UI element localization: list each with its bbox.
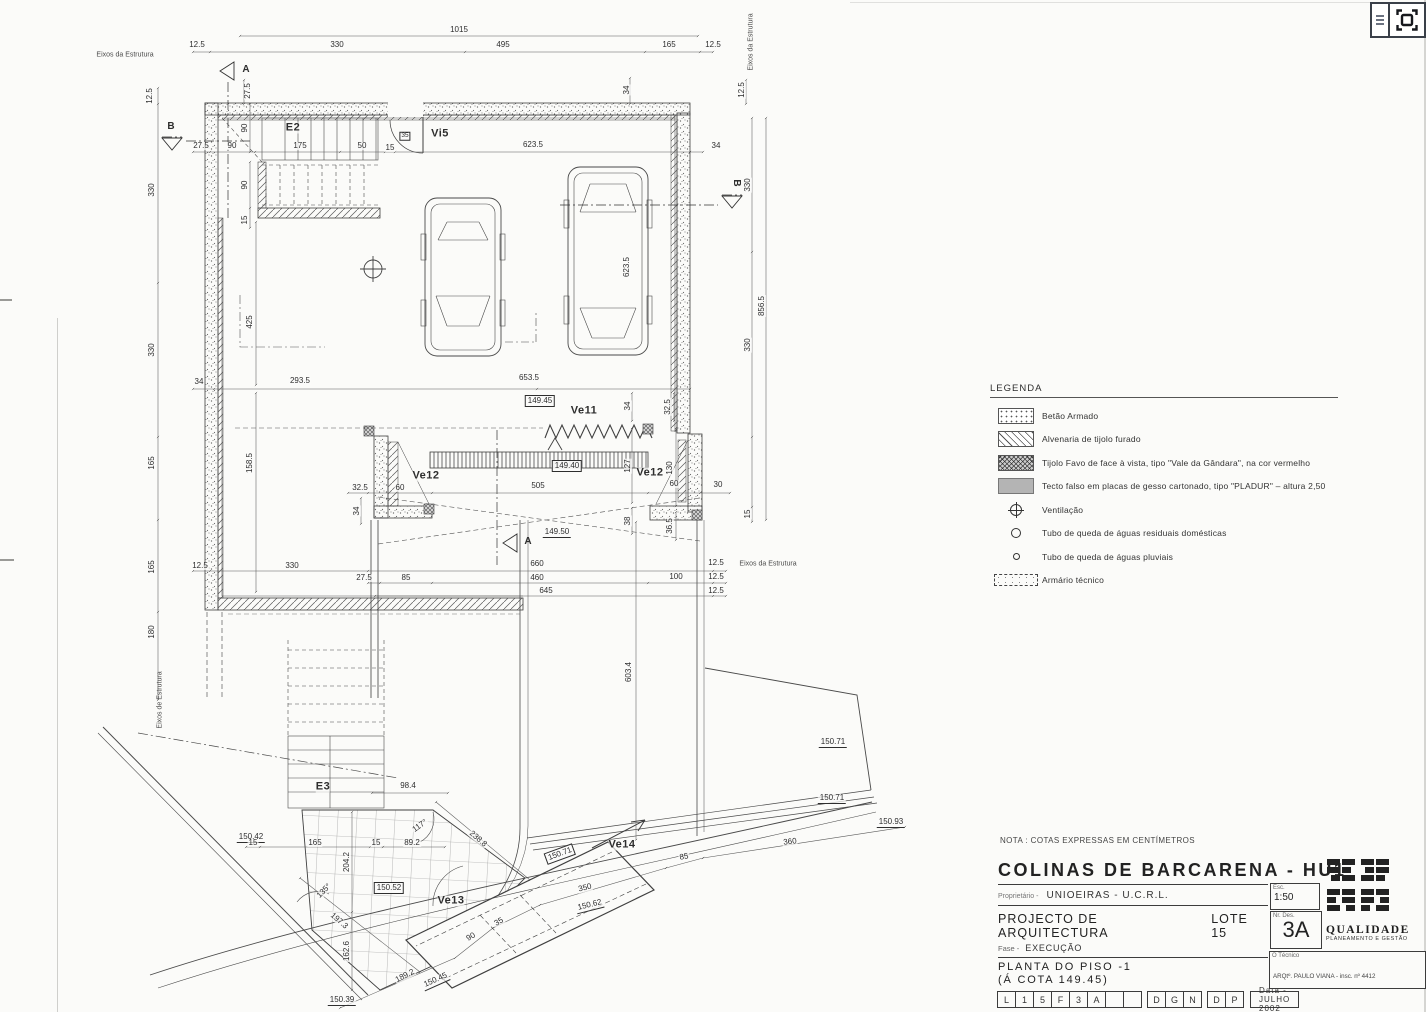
legend-item-label: Alvenaria de tijolo furado — [1042, 434, 1141, 444]
legend: LEGENDA Betão ArmadoAlvenaria de tijolo … — [990, 383, 1338, 592]
legend-item-label: Tecto falso em placas de gesso cartonado… — [1042, 481, 1325, 491]
menu-icon[interactable] — [1372, 4, 1390, 36]
technician-label: O Técnico — [1270, 952, 1425, 959]
code-groups: L15F3ADGNDP — [998, 991, 1244, 1008]
legend-item: Ventilação — [990, 498, 1338, 522]
lot-number: LOTE 15 — [1211, 912, 1268, 940]
legend-item-label: Armário técnico — [1042, 575, 1104, 585]
doc-type-row: PROJECTO DE ARQUITECTURA LOTE 15 Fase - … — [998, 906, 1268, 958]
architect-name: ARQtº. PAULO VIANA - insc. nº 4412 — [1270, 959, 1425, 980]
code-cell: 3 — [1069, 991, 1088, 1008]
code-cell: N — [1183, 991, 1202, 1008]
nota-text: NOTA : COTAS EXPRESSAS EM CENTÍMETROS — [1000, 836, 1195, 845]
circle-small-swatch-icon — [1013, 553, 1020, 560]
code-cell — [1105, 991, 1124, 1008]
hatch-swatch-icon — [998, 431, 1034, 447]
circle-large-swatch-icon — [1011, 528, 1021, 538]
stair-e2 — [222, 118, 380, 218]
owner-label: Proprietário - — [998, 893, 1038, 900]
stipple-swatch-icon — [998, 408, 1034, 424]
code-group: DGN — [1148, 991, 1202, 1008]
legend-items: Betão ArmadoAlvenaria de tijolo furadoTi… — [990, 404, 1338, 592]
legend-title: LEGENDA — [990, 383, 1338, 398]
drawing-number-value: 3A — [1271, 917, 1321, 943]
drawing-title-line2: (Á COTA 149.45) — [998, 974, 1268, 987]
logo-line2: PLANEAMENTO E GESTÃO — [1326, 936, 1426, 942]
legend-item-label: Tijolo Favo de face à vista, tipo "Vale … — [1042, 458, 1310, 468]
legend-item: Alvenaria de tijolo furado — [990, 428, 1338, 452]
legend-item: Tubo de queda de águas pluviais — [990, 545, 1338, 569]
legend-item: Tijolo Favo de face à vista, tipo "Vale … — [990, 451, 1338, 475]
ve14-arrow — [592, 820, 645, 848]
code-row: L15F3ADGNDP Data - JULHO 2002 — [998, 991, 1268, 1008]
gray-swatch-icon — [998, 478, 1034, 494]
doc-type: PROJECTO DE ARQUITECTURA — [998, 912, 1211, 940]
logo-blocks-icon — [1326, 858, 1390, 918]
code-cell: D — [1147, 991, 1166, 1008]
phase-label: Fase - — [998, 944, 1019, 953]
code-cell: G — [1165, 991, 1184, 1008]
code-cell: A — [1087, 991, 1106, 1008]
owner-row: Proprietário - UNIOEIRAS - U.C.R.L. — [998, 885, 1268, 906]
scale-label: Esc. — [1271, 884, 1319, 891]
legend-item-label: Tubo de queda de águas pluviais — [1042, 552, 1173, 562]
title-block-left: COLINAS DE BARCARENA - HU1 Proprietário … — [998, 856, 1268, 1008]
drawing-title: PLANTA DO PISO -1 (Á COTA 149.45) — [998, 958, 1268, 988]
dashed-box-swatch-icon — [994, 574, 1038, 586]
legend-item: Tubo de queda de águas residuais domésti… — [990, 522, 1338, 546]
code-cell: L — [997, 991, 1016, 1008]
code-cell: D — [1207, 991, 1226, 1008]
code-group: L15F3A — [998, 991, 1142, 1008]
stair-e3 — [288, 640, 384, 808]
code-cell: P — [1225, 991, 1244, 1008]
car-2 — [564, 167, 652, 355]
legend-item: Armário técnico — [990, 569, 1338, 593]
fullscreen-icon[interactable] — [1390, 9, 1424, 31]
vent-swatch-icon — [1010, 504, 1022, 516]
code-cell: F — [1051, 991, 1070, 1008]
legend-item-label: Betão Armado — [1042, 411, 1098, 421]
legend-item: Tecto falso em placas de gesso cartonado… — [990, 475, 1338, 499]
company-logo: QUALIDADE PLANEAMENTO E GESTÃO URBANA DE… — [1326, 858, 1426, 952]
legend-item: Betão Armado — [990, 404, 1338, 428]
drawing-number-box: Nr. Des. 3A — [1270, 911, 1322, 949]
legend-item-label: Tubo de queda de águas residuais domésti… — [1042, 528, 1227, 538]
crosshatch-swatch-icon — [998, 455, 1034, 471]
section-markers — [162, 62, 742, 565]
code-cell — [1123, 991, 1142, 1008]
code-cell: 5 — [1033, 991, 1052, 1008]
project-title: COLINAS DE BARCARENA - HU1 — [998, 856, 1268, 885]
legend-item-label: Ventilação — [1042, 505, 1083, 515]
drawing-sheet: 101512.533049516512.512.527.53412.527.59… — [0, 0, 1426, 1012]
code-cell: 1 — [1015, 991, 1034, 1008]
code-group: DP — [1208, 991, 1244, 1008]
date-box: Data - JULHO 2002 — [1250, 991, 1299, 1008]
garage-walls — [205, 101, 690, 700]
scale-value: 1:50 — [1271, 891, 1319, 904]
logo-line1: QUALIDADE — [1326, 924, 1426, 936]
scale-box: Esc. 1:50 — [1270, 883, 1320, 910]
drawing-title-line1: PLANTA DO PISO -1 — [998, 961, 1268, 974]
viewer-controls — [1370, 2, 1426, 38]
ventilation-symbol — [360, 256, 386, 282]
car-1 — [421, 198, 536, 356]
technician-box: O Técnico ARQtº. PAULO VIANA - insc. nº … — [1269, 951, 1426, 989]
owner-value: UNIOEIRAS - U.C.R.L. — [1046, 890, 1168, 901]
phase-value: EXECUÇÃO — [1025, 943, 1082, 953]
